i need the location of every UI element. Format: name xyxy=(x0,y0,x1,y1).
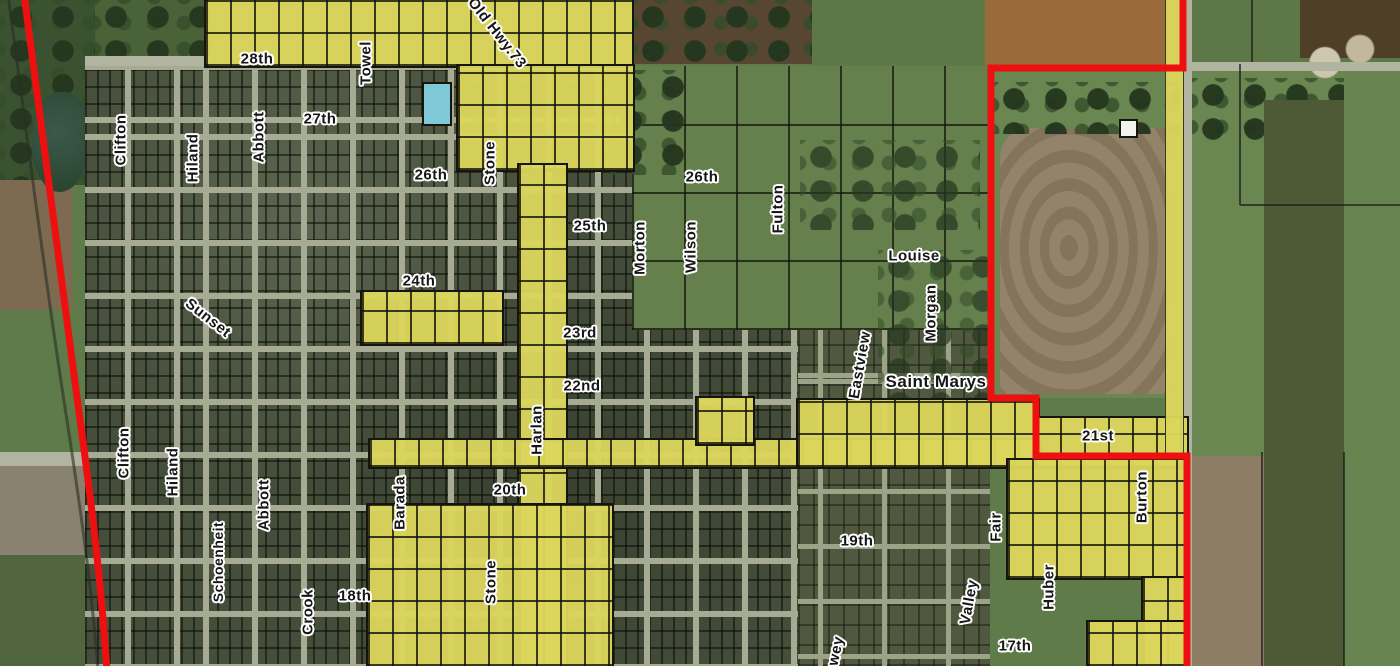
street-label: Morton xyxy=(632,221,649,275)
street-label: 20th xyxy=(494,482,527,499)
street-label: 19th xyxy=(841,533,874,550)
street-label: 21st xyxy=(1082,428,1114,445)
street-label: 17th xyxy=(999,638,1032,655)
street-label: 22nd xyxy=(563,378,600,395)
street-label: Eastview xyxy=(846,330,875,400)
street-label: Old Hwy.73 xyxy=(464,0,530,72)
street-label: Valley xyxy=(957,578,982,626)
street-label: Burton xyxy=(1134,471,1151,523)
street-label: Saint Marys xyxy=(886,372,987,392)
street-label: Wilson xyxy=(683,221,700,273)
street-label: Fulton xyxy=(770,185,787,234)
street-label: Abbott xyxy=(256,479,273,530)
street-label: 23rd xyxy=(563,325,597,342)
street-label: Abbott xyxy=(251,111,268,162)
street-label: Huber xyxy=(1041,564,1058,610)
street-label: Sunset xyxy=(182,295,234,341)
street-label: 25th xyxy=(574,218,607,235)
street-label: Barada xyxy=(392,476,409,530)
street-label: 24th xyxy=(403,273,436,290)
street-label: 27th xyxy=(304,111,337,128)
street-label: Clifton xyxy=(116,428,133,479)
street-label: Towel xyxy=(358,41,375,85)
street-label: Clifton xyxy=(113,115,130,166)
street-label: Hiland xyxy=(185,134,202,183)
street-label: Fair xyxy=(988,512,1005,542)
street-label: Schoenheit xyxy=(210,522,226,602)
street-label: Louise xyxy=(888,248,939,265)
street-label: 26th xyxy=(686,169,719,186)
street-label: Stone xyxy=(482,141,499,185)
map-canvas[interactable]: 28thTowelOld Hwy.73CliftonHilandAbbott27… xyxy=(0,0,1400,666)
street-label: Morgan xyxy=(923,284,940,341)
street-labels-layer: 28thTowelOld Hwy.73CliftonHilandAbbott27… xyxy=(0,0,1400,666)
street-label: 18th xyxy=(339,588,372,605)
street-label: Hiland xyxy=(165,448,182,497)
street-label: Crook xyxy=(300,589,317,635)
street-label: 26th xyxy=(415,167,448,184)
street-label: 28th xyxy=(241,51,274,68)
street-label: wey xyxy=(825,635,848,666)
street-label: Stone xyxy=(483,560,500,604)
street-label: Harlan xyxy=(529,405,546,455)
